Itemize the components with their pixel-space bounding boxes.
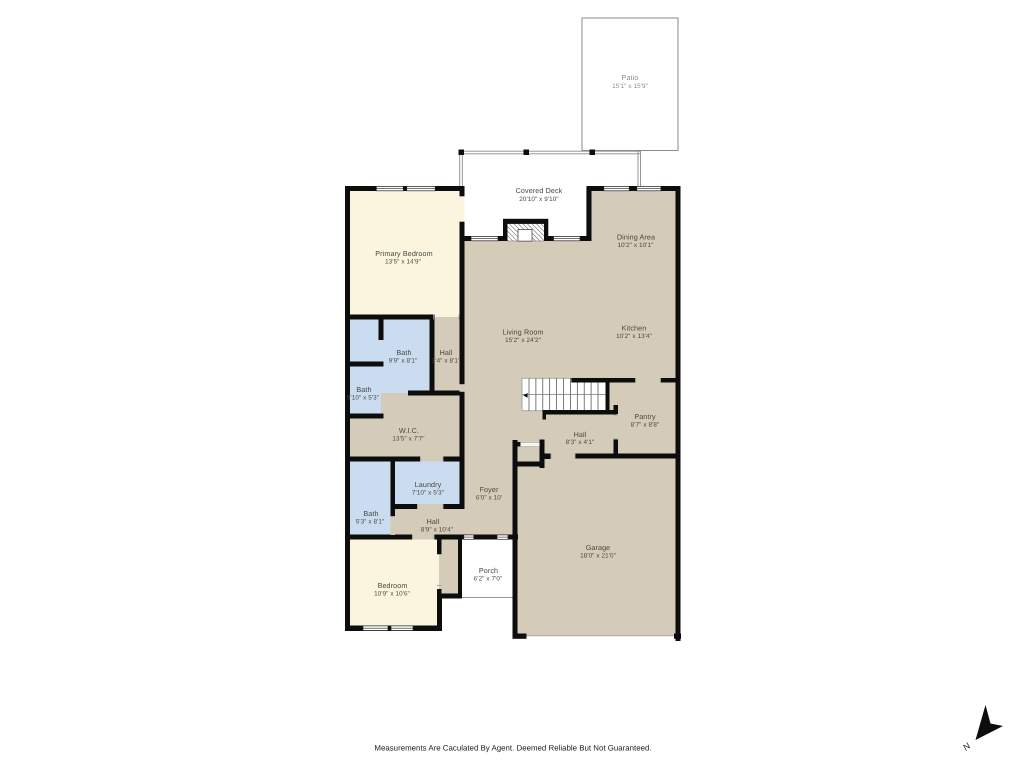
svg-text:Bath: Bath — [363, 509, 378, 518]
svg-text:Garage: Garage — [586, 543, 611, 552]
svg-text:20'10" x 9'10": 20'10" x 9'10" — [519, 196, 558, 203]
svg-text:7'10" x 5'3": 7'10" x 5'3" — [412, 490, 444, 497]
svg-text:10'2" x 10'1": 10'2" x 10'1" — [618, 242, 654, 249]
svg-text:Bath: Bath — [356, 385, 371, 394]
svg-text:Foyer: Foyer — [480, 485, 499, 494]
svg-text:Laundry: Laundry — [415, 480, 442, 489]
svg-text:3'4" x 8'1": 3'4" x 8'1" — [432, 358, 461, 365]
svg-text:6'0" x 10': 6'0" x 10' — [476, 495, 502, 502]
svg-text:Primary Bedroom: Primary Bedroom — [375, 249, 432, 258]
svg-text:8'3" x 4'1": 8'3" x 4'1" — [566, 439, 595, 446]
svg-text:Pantry: Pantry — [634, 412, 656, 421]
svg-text:9'10" x 5'3": 9'10" x 5'3" — [347, 395, 379, 402]
svg-text:W.I.C.: W.I.C. — [399, 426, 419, 435]
svg-text:Dining Area: Dining Area — [617, 233, 655, 242]
svg-text:8'7" x 8'8": 8'7" x 8'8" — [631, 422, 660, 429]
svg-text:5'3" x 8'1": 5'3" x 8'1" — [356, 519, 385, 526]
svg-text:Hall: Hall — [440, 348, 453, 357]
svg-text:Hall: Hall — [574, 430, 587, 439]
svg-text:15'1" x 15'9": 15'1" x 15'9" — [612, 83, 648, 90]
svg-text:8'9" x 10'4": 8'9" x 10'4" — [421, 527, 453, 534]
svg-text:13'5" x 7'7": 13'5" x 7'7" — [392, 436, 424, 443]
svg-text:Bath: Bath — [396, 348, 411, 357]
svg-text:Porch: Porch — [479, 566, 498, 575]
svg-text:Hall: Hall — [427, 517, 440, 526]
svg-text:Patio: Patio — [622, 73, 639, 82]
svg-text:18'0" x 21'0": 18'0" x 21'0" — [580, 553, 616, 560]
svg-text:10'9" x 10'6": 10'9" x 10'6" — [374, 591, 410, 598]
svg-text:6'2" x 7'0": 6'2" x 7'0" — [474, 576, 503, 583]
svg-text:Covered Deck: Covered Deck — [516, 186, 563, 195]
svg-text:9'9" x 8'1": 9'9" x 8'1" — [389, 358, 418, 365]
svg-text:Bedroom: Bedroom — [378, 581, 408, 590]
svg-text:15'2" x 24'2": 15'2" x 24'2" — [505, 337, 541, 344]
svg-text:Measurements Are Caculated By: Measurements Are Caculated By Agent. Dee… — [374, 744, 651, 753]
svg-text:13'5" x 14'9": 13'5" x 14'9" — [385, 259, 421, 266]
svg-text:Kitchen: Kitchen — [622, 324, 647, 333]
svg-text:10'2" x 13'4": 10'2" x 13'4" — [616, 333, 652, 340]
svg-text:Living Room: Living Room — [502, 328, 543, 337]
